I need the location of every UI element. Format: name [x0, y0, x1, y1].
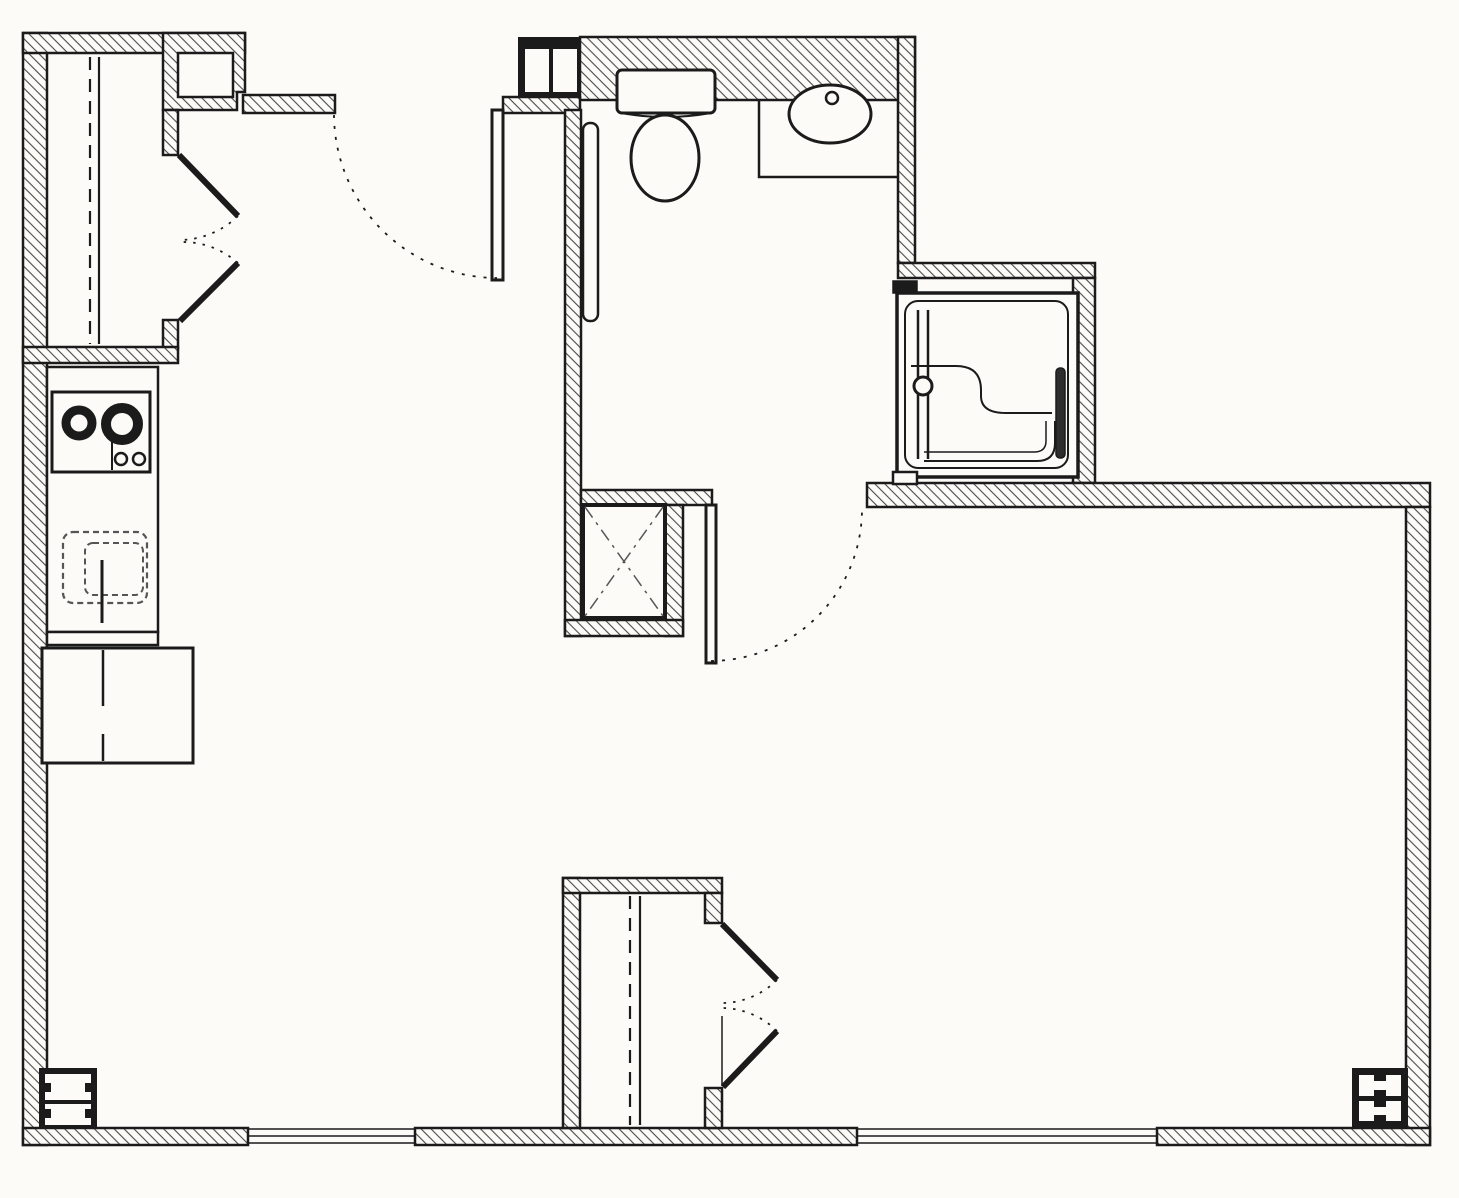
wall-notch-recess: [178, 53, 233, 97]
corner-column-sw-cell-2: [45, 1104, 91, 1125]
corner-column-se-notch-2: [1374, 1090, 1386, 1096]
corner-column-se-notch-3: [1374, 1101, 1386, 1107]
corner-column-sw-notch-3: [45, 1109, 51, 1118]
wall-south-right-segment: [867, 483, 1430, 507]
shower-wall-stub-top: [893, 281, 917, 293]
wall-bottom-1: [23, 1128, 248, 1145]
shower-grab-bar: [1056, 368, 1065, 458]
cooktop-knob-1: [115, 453, 127, 465]
bathroom-grab-bar: [583, 123, 598, 321]
vanity-faucet: [826, 92, 838, 104]
entry-column-cell-right: [553, 49, 577, 92]
wall-lower-closet-jamb-bottom: [705, 1088, 722, 1128]
wall-upper-closet-jamb-top: [163, 110, 178, 155]
wall-vestibule-top-band: [243, 95, 335, 113]
wall-bottom-3: [1157, 1128, 1430, 1145]
corner-column-sw-notch-4: [85, 1109, 91, 1118]
entry-door-leaf: [492, 110, 503, 280]
wall-right: [1406, 507, 1430, 1145]
wall-chase-right: [665, 505, 683, 636]
wall-bathroom-south-left: [581, 490, 712, 505]
corner-column-sw-cell-1: [45, 1074, 91, 1100]
shower-door-knob: [914, 377, 932, 395]
wall-upper-closet-jamb-bottom: [163, 320, 178, 348]
wall-bathroom-left: [565, 110, 581, 636]
wall-chase-bottom: [565, 620, 683, 636]
wall-lower-closet-left: [563, 878, 580, 1128]
floor-plan-canvas: [0, 0, 1459, 1198]
wall-shower-top: [898, 263, 1095, 278]
kitchen-counter-end-cap: [47, 632, 158, 645]
refrigerator: [42, 648, 193, 763]
corner-column-se-notch-1: [1374, 1075, 1386, 1081]
wall-left: [23, 33, 47, 1145]
corner-column-sw-notch-1: [45, 1083, 51, 1092]
wall-upper-closet-bottom: [23, 347, 178, 363]
paper-background: [0, 0, 1459, 1198]
bathroom-door-leaf: [706, 505, 716, 663]
floor-plan-figure: [0, 0, 1459, 1198]
wall-lower-closet-jamb-top: [705, 893, 722, 923]
toilet-tank: [617, 70, 715, 113]
wall-bottom-2: [415, 1128, 857, 1145]
wall-bathroom-right: [898, 37, 915, 263]
entry-column-cell-left: [525, 49, 549, 92]
cooktop-knob-2: [133, 453, 145, 465]
corner-column-sw-notch-2: [85, 1083, 91, 1092]
wall-lower-closet-top: [563, 878, 722, 893]
toilet-bowl: [631, 115, 699, 201]
shower-wall-stub-bottom: [893, 472, 917, 484]
corner-column-se-notch-4: [1374, 1115, 1386, 1121]
